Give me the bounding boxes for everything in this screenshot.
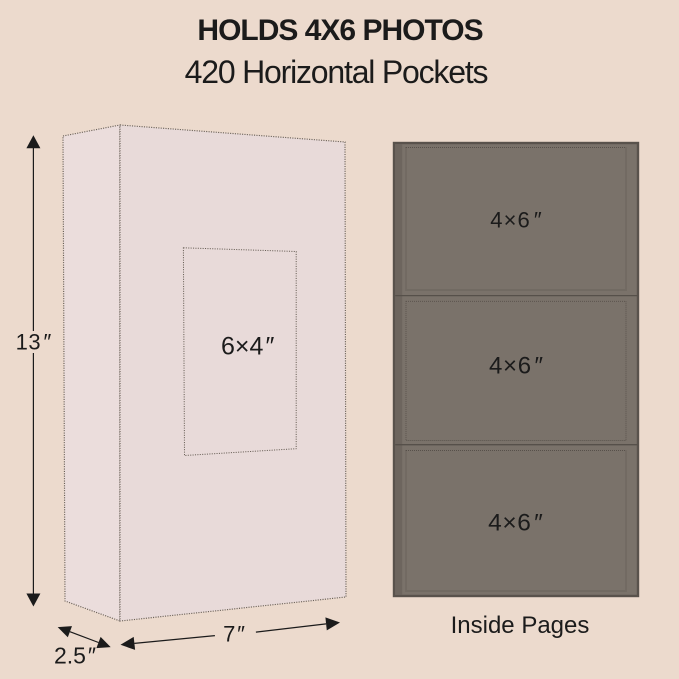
svg-text:4×6 ″: 4×6 ″ <box>488 509 543 536</box>
svg-text:6×4 ″: 6×4 ″ <box>221 332 274 360</box>
svg-text:4×6 ″: 4×6 ″ <box>490 208 542 233</box>
svg-text:2.5 ″: 2.5 ″ <box>54 643 96 669</box>
svg-text:7 ″: 7 ″ <box>223 621 245 646</box>
svg-text:4×6 ″: 4×6 ″ <box>489 353 544 380</box>
svg-text:13 ″: 13 ″ <box>16 330 52 355</box>
svg-text:420 Horizontal Pockets: 420 Horizontal Pockets <box>185 54 488 90</box>
svg-text:HOLDS 4X6 PHOTOS: HOLDS 4X6 PHOTOS <box>197 14 482 47</box>
svg-text:Inside Pages: Inside Pages <box>451 612 590 639</box>
